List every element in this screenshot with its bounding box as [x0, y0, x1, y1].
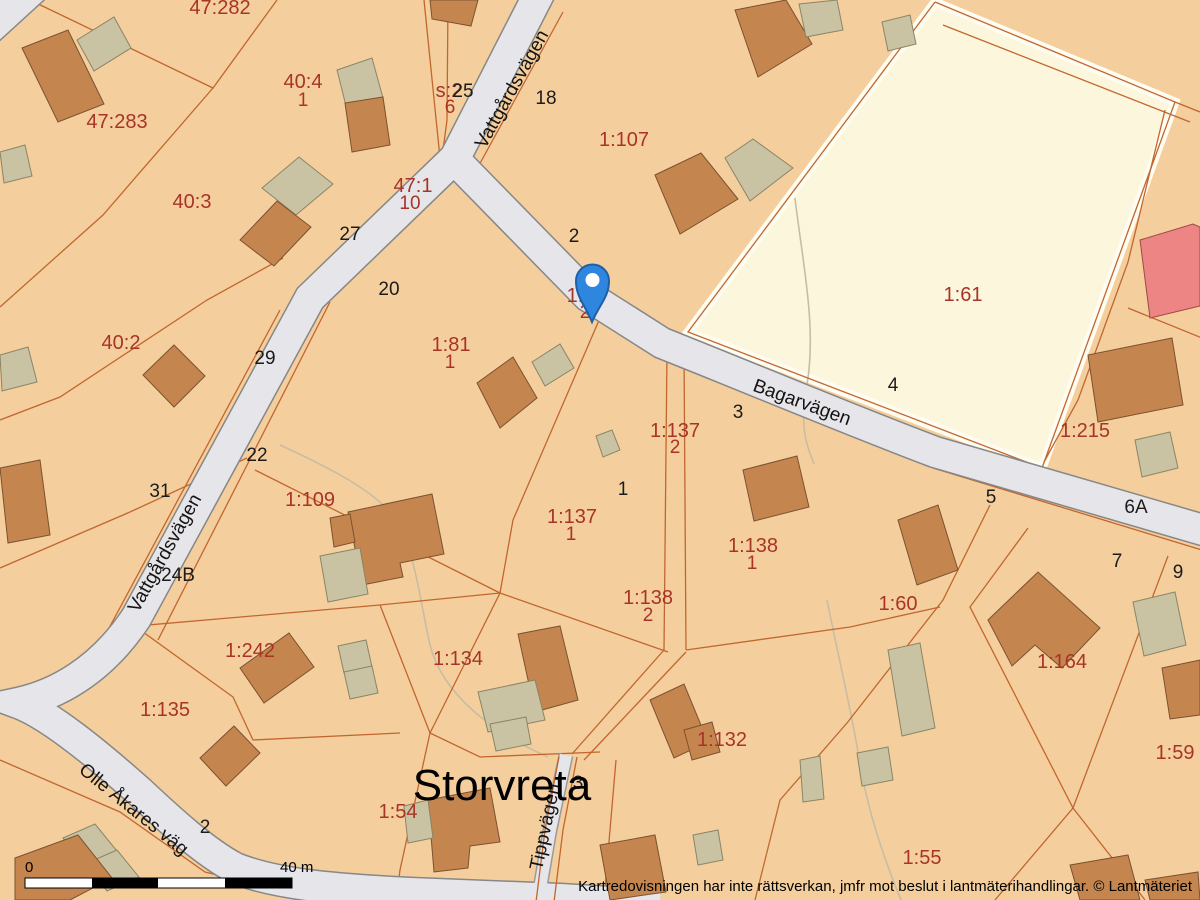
house-number: 3: [733, 402, 744, 423]
parcel-label: 1:242: [225, 640, 275, 662]
parcel-label: 1:60: [879, 593, 918, 615]
parcel-label: 1:215: [1060, 420, 1110, 442]
scale-end-label: 40 m: [280, 859, 313, 876]
house-number: 9: [1173, 562, 1184, 583]
house-number: 25: [452, 81, 473, 102]
house-number: 4: [888, 375, 899, 396]
parcel-unit: 1: [566, 524, 577, 545]
building: [330, 514, 355, 547]
parcel-label: 40:3: [173, 191, 212, 213]
parcel-unit: 1: [445, 352, 456, 373]
highlighted-building: [1140, 224, 1200, 318]
pin-hole: [586, 273, 600, 287]
parcel-label: 1:107: [599, 129, 649, 151]
parcel-label: 1:109: [285, 489, 335, 511]
place-name: Storvreta: [413, 761, 592, 810]
outbuilding: [882, 15, 916, 51]
parcel-unit: 10: [399, 193, 420, 214]
scale-bar-segment: [92, 878, 158, 888]
parcel-unit: 2: [670, 437, 681, 458]
map-canvas[interactable]: 47:282 47:283 40:4 1 40:3 40:2 s:2 6 47:…: [0, 0, 1200, 900]
parcel-label: 40:2: [102, 332, 141, 354]
house-number: 7: [1112, 551, 1123, 572]
outbuilding: [693, 830, 723, 865]
parcel-unit: 1: [747, 553, 758, 574]
scale-start-label: 0: [25, 859, 33, 876]
house-number: 22: [246, 445, 267, 466]
parcel-label: 1:59: [1156, 742, 1195, 764]
house-number: 2: [200, 817, 211, 838]
outbuilding: [320, 548, 368, 602]
scale-bar-segment: [225, 878, 292, 888]
parcel-label: 47:283: [86, 111, 147, 133]
parcel-label: 1:135: [140, 699, 190, 721]
house-number: 27: [339, 224, 360, 245]
house-number: 5: [986, 487, 997, 508]
outbuilding: [857, 747, 893, 786]
parcel-label: 1:134: [433, 648, 483, 670]
house-number: 6A: [1124, 497, 1148, 518]
outbuilding: [799, 0, 843, 37]
parcel-label: 1:54: [379, 801, 418, 823]
house-number: 29: [254, 348, 275, 369]
parcel-label: 1:55: [903, 847, 942, 869]
parcel-label: 1:61: [944, 284, 983, 306]
parcel-label: 1:132: [697, 729, 747, 751]
house-number: 18: [535, 88, 556, 109]
parcel-unit: 2: [643, 605, 654, 626]
parcel-unit: 1: [298, 90, 309, 111]
map-svg: 47:282 47:283 40:4 1 40:3 40:2 s:2 6 47:…: [0, 0, 1200, 900]
house-number: 1: [618, 479, 629, 500]
outbuilding: [344, 666, 378, 699]
map-disclaimer: Kartredovisningen har inte rättsverkan, …: [578, 878, 1193, 895]
parcel-label: 47:282: [189, 0, 250, 19]
house-number: 20: [378, 279, 399, 300]
outbuilding: [800, 756, 824, 802]
building: [345, 97, 390, 152]
house-number: 2: [569, 226, 580, 247]
parcel-label: 1:164: [1037, 651, 1087, 673]
house-number: 31: [149, 481, 170, 502]
